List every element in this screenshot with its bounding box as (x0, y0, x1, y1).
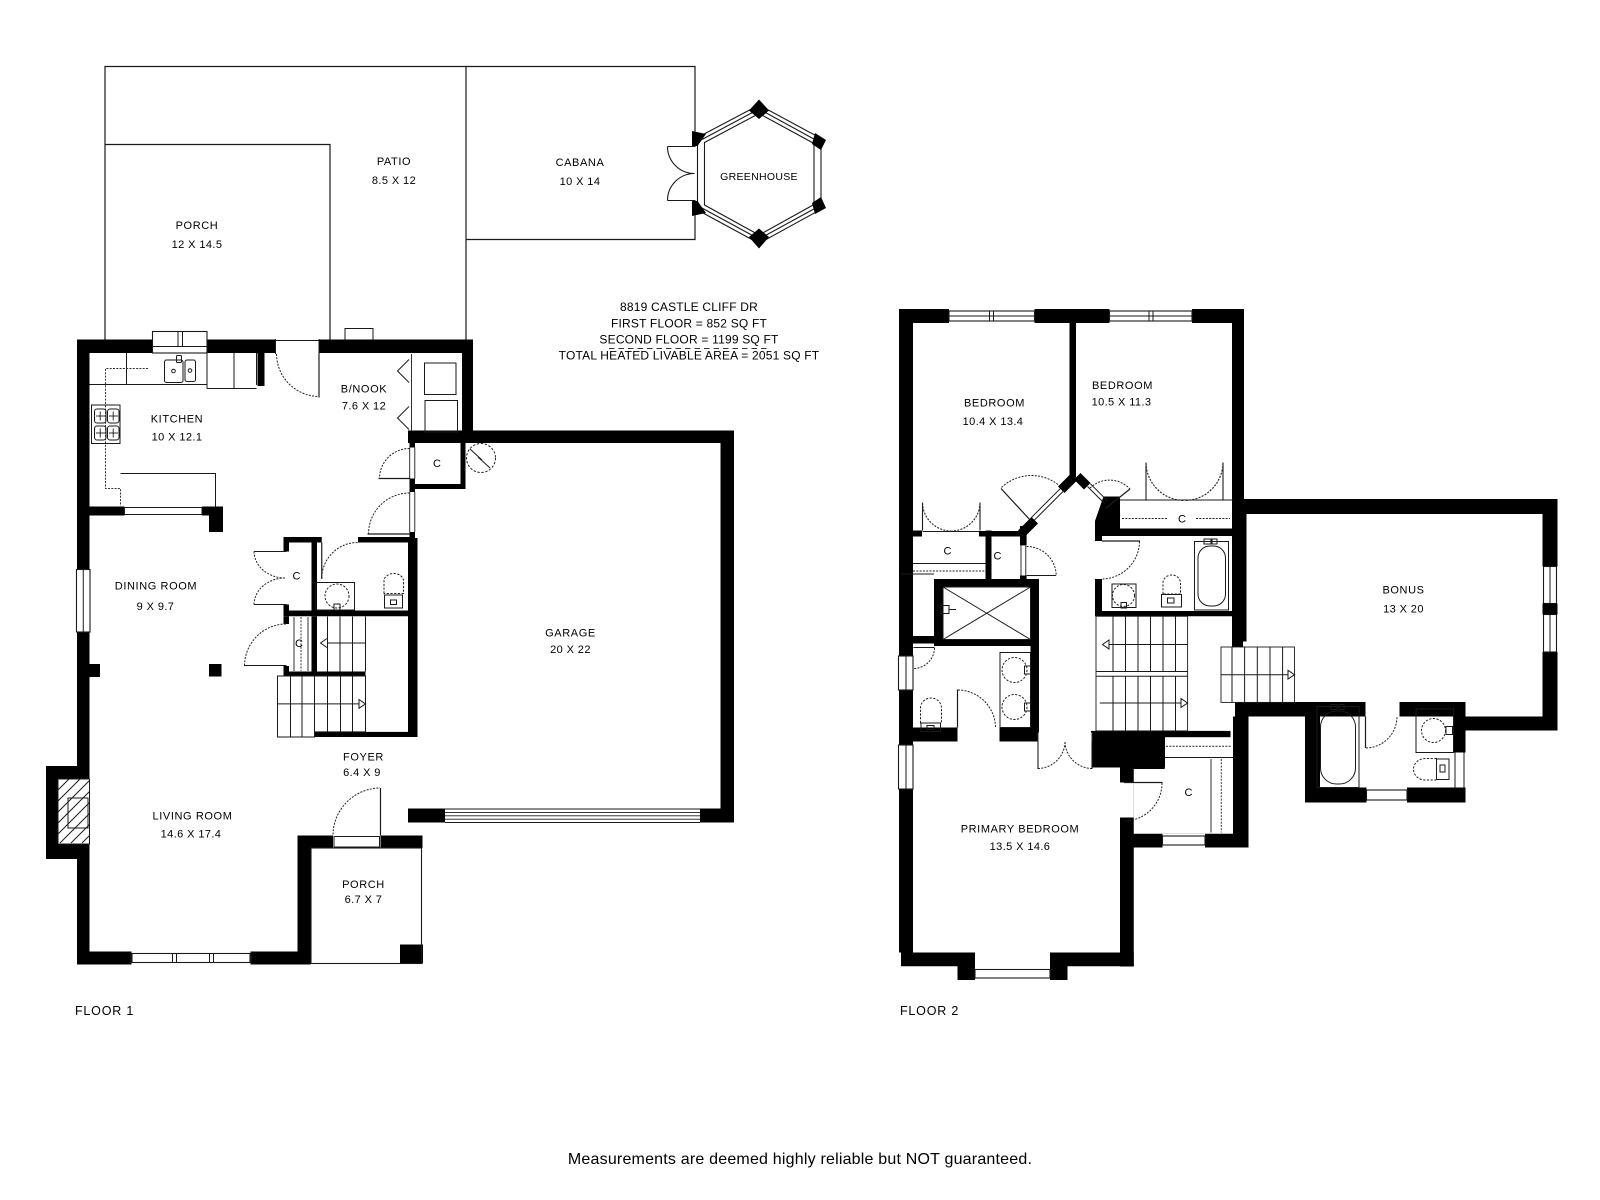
svg-text:FIRST FLOOR = 852 SQ FT: FIRST FLOOR = 852 SQ FT (611, 317, 768, 331)
svg-text:GREENHOUSE: GREENHOUSE (720, 171, 798, 183)
svg-text:DINING ROOM: DINING ROOM (115, 581, 197, 593)
svg-text:SECOND FLOOR = 1199 SQ FT: SECOND FLOOR = 1199 SQ FT (599, 333, 779, 347)
svg-text:13.5 X 14.6: 13.5 X 14.6 (990, 841, 1051, 853)
svg-text:C: C (1185, 787, 1193, 799)
svg-text:8.5 X 12: 8.5 X 12 (372, 175, 416, 187)
svg-text:BEDROOM: BEDROOM (1092, 380, 1153, 392)
svg-text:PORCH: PORCH (342, 879, 385, 891)
svg-text:C: C (944, 546, 952, 558)
svg-text:FOYER: FOYER (343, 752, 384, 764)
svg-text:LIVING ROOM: LIVING ROOM (153, 811, 233, 823)
svg-text:8819 CASTLE CLIFF DR: 8819 CASTLE CLIFF DR (620, 300, 758, 314)
svg-text:10.5 X 11.3: 10.5 X 11.3 (1092, 397, 1152, 409)
svg-text:C: C (295, 638, 303, 650)
svg-text:CABANA: CABANA (556, 157, 605, 169)
svg-text:TOTAL HEATED LIVABLE AREA = 20: TOTAL HEATED LIVABLE AREA = 2051 SQ FT (559, 349, 820, 363)
svg-text:6.4 X 9: 6.4 X 9 (343, 767, 381, 779)
svg-text:13 X 20: 13 X 20 (1383, 604, 1424, 616)
svg-text:Measurements are deemed highly: Measurements are deemed highly reliable … (568, 1151, 1032, 1168)
svg-text:C: C (994, 551, 1002, 563)
svg-text:C: C (433, 458, 441, 470)
svg-text:KITCHEN: KITCHEN (151, 414, 203, 426)
svg-text:12 X 14.5: 12 X 14.5 (172, 239, 223, 251)
svg-text:9 X 9.7: 9 X 9.7 (137, 601, 175, 613)
svg-text:B/NOOK: B/NOOK (341, 384, 387, 396)
svg-text:BONUS: BONUS (1382, 585, 1424, 597)
svg-text:C: C (1178, 514, 1186, 526)
svg-text:10 X 14: 10 X 14 (560, 176, 601, 188)
svg-text:C: C (293, 571, 301, 583)
svg-text:BEDROOM: BEDROOM (964, 398, 1025, 410)
svg-text:PORCH: PORCH (176, 220, 219, 232)
svg-text:20 X 22: 20 X 22 (550, 644, 591, 656)
svg-text:GARAGE: GARAGE (545, 628, 596, 640)
svg-text:PATIO: PATIO (377, 156, 411, 168)
svg-text:10 X 12.1: 10 X 12.1 (152, 432, 203, 444)
svg-text:14.6 X 17.4: 14.6 X 17.4 (161, 829, 222, 841)
svg-text:FLOOR 1: FLOOR 1 (75, 1004, 134, 1018)
svg-text:7.6 X 12: 7.6 X 12 (342, 401, 386, 413)
svg-text:PRIMARY BEDROOM: PRIMARY BEDROOM (961, 824, 1080, 836)
svg-text:FLOOR 2: FLOOR 2 (900, 1004, 959, 1018)
svg-text:6.7 X 7: 6.7 X 7 (345, 894, 383, 906)
svg-text:10.4 X 13.4: 10.4 X 13.4 (963, 416, 1024, 428)
